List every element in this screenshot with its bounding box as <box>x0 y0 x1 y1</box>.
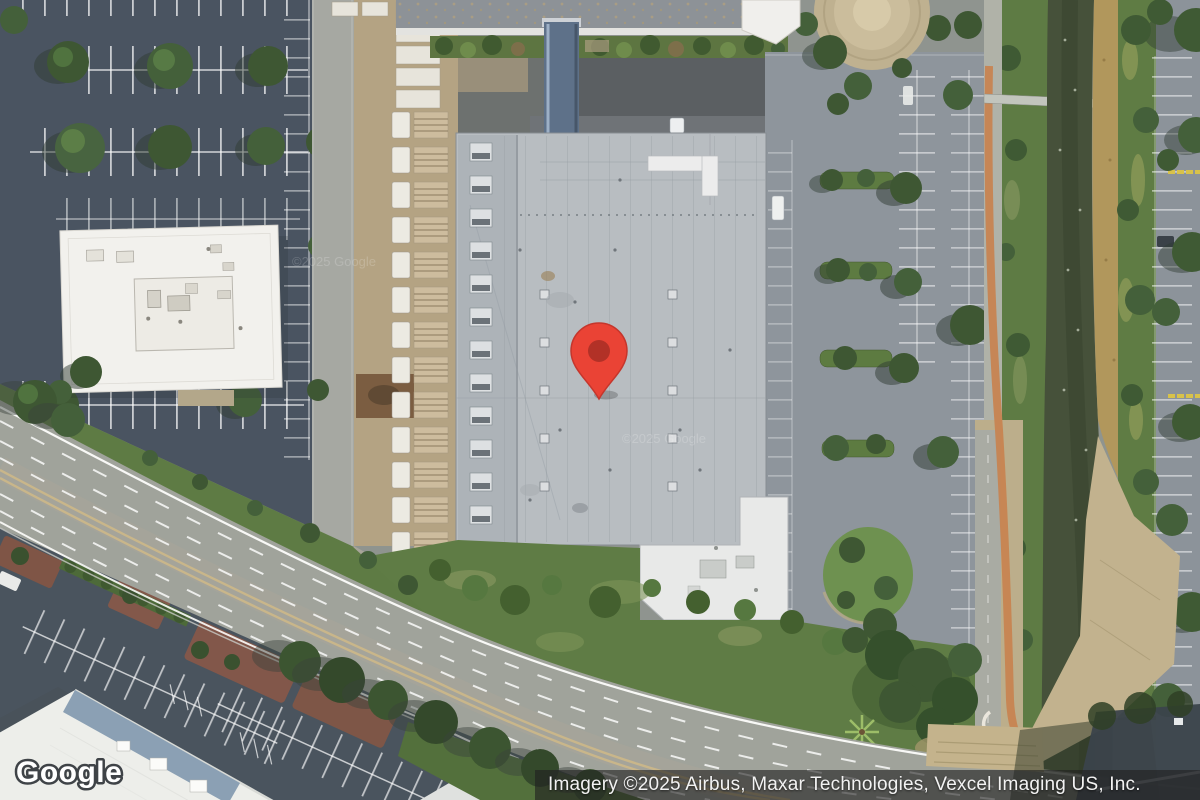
imagery-attribution-text: Imagery ©2025 Airbus, Maxar Technologies… <box>548 774 1141 796</box>
google-logo[interactable]: Google <box>12 750 142 794</box>
map-watermark: ©2025 Google <box>292 254 376 269</box>
map-canvas[interactable]: ©2025 Google ©2025 Google <box>0 0 1200 800</box>
shrub-strip-north <box>430 35 788 58</box>
imagery-attribution: Imagery ©2025 Airbus, Maxar Technologies… <box>535 770 1200 800</box>
map-watermark: ©2025 Google <box>622 431 706 446</box>
map-viewport: ©2025 Google ©2025 Google Google Imagery… <box>0 0 1200 800</box>
office-building-west <box>48 225 329 406</box>
north-service-area <box>458 52 792 134</box>
map-pin-dot <box>588 340 610 362</box>
google-logo-text: Google <box>16 756 122 789</box>
north-building-roof <box>396 0 788 35</box>
sky-bridge <box>542 18 581 144</box>
access-road-west <box>312 0 354 546</box>
